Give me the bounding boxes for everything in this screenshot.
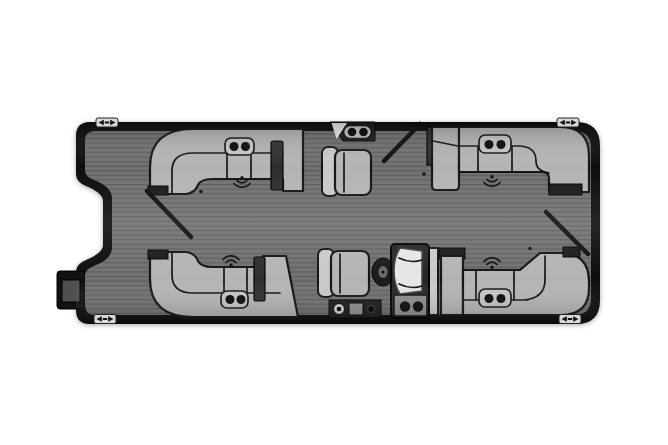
chair-cushion [335,150,371,195]
step-hatch [349,303,363,315]
seat-end-cap [549,184,582,195]
cup-holder [241,142,250,151]
cup-holder [485,294,494,303]
cleat-icon [559,315,581,324]
captain-chair-cushion [331,251,369,296]
steering-wheel-center [382,271,385,274]
armrest [254,257,265,301]
lounge-bottom-left [148,250,298,317]
cleat-icon [557,118,579,127]
cup-holder [359,128,368,137]
gate-latch [422,172,426,176]
cup-holder-tray [479,289,511,307]
outboard-motor [57,271,85,309]
cup-holder [485,140,494,149]
cleat-icon [96,118,118,127]
seat-end-cap [148,250,168,259]
cup-holder [400,301,410,311]
stern-step-storage [329,300,381,318]
cup-holder [413,301,423,311]
recliner-chair [322,147,371,196]
boat-floorplan [0,0,668,445]
seat-end-cap [563,247,580,257]
drain-port [368,306,375,313]
armrest [271,141,283,190]
cup-holder-center [337,307,342,312]
rail-table [330,122,375,141]
cup-holder [497,294,506,303]
chaise-seat [432,127,459,190]
gate-latch [199,190,203,194]
cup-holder [497,140,506,149]
motor-cowl [62,280,80,302]
cup-holder [348,128,357,137]
cleat-icon [94,315,116,324]
cup-holder [230,142,239,151]
boat-floorplan-page [0,0,668,445]
cup-holder-tray [479,135,511,153]
chaise-seat [441,256,463,315]
gate-latch [528,247,532,251]
cup-holder [237,295,246,304]
cup-holder [226,295,235,304]
